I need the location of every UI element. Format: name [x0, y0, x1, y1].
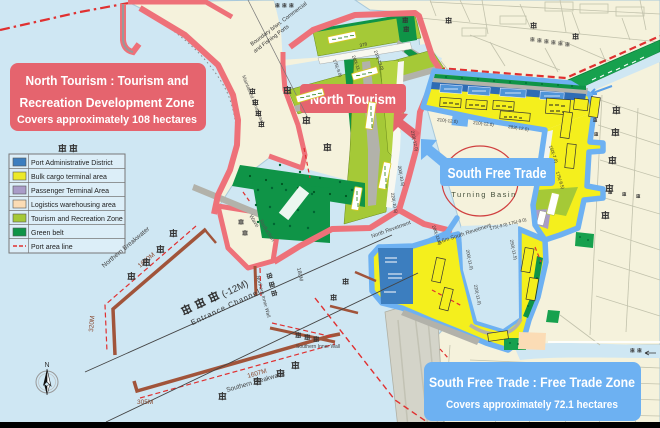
svg-text:Covers approximately 72.1 hect: Covers approximately 72.1 hectares — [446, 399, 618, 411]
svg-text:South Free Trade: South Free Trade — [448, 166, 547, 182]
svg-text:Bulk cargo terminal area: Bulk cargo terminal area — [31, 174, 107, 181]
svg-text:Passenger Terminal Area: Passenger Terminal Area — [31, 188, 109, 195]
svg-text:Tourism and Recreation Zone: Tourism and Recreation Zone — [31, 216, 123, 223]
svg-text:North Tourism : Tourism and: North Tourism : Tourism and — [26, 73, 189, 88]
svg-text:Covers approximately 108 hecta: Covers approximately 108 hectares — [17, 114, 197, 126]
svg-text:Turning Basin: Turning Basin — [451, 190, 517, 199]
svg-text:Green belt: Green belt — [31, 230, 64, 237]
svg-text:N: N — [44, 362, 49, 369]
svg-text:Southern Inner Wall: Southern Inner Wall — [296, 344, 340, 350]
svg-text:South Free Trade : Free Trade: South Free Trade : Free Trade Zone — [429, 375, 635, 390]
svg-text:Port area line: Port area line — [31, 244, 73, 251]
svg-text:305M: 305M — [137, 399, 153, 406]
svg-text:Recreation Development Zone: Recreation Development Zone — [20, 95, 195, 110]
svg-text:320M: 320M — [88, 315, 96, 332]
svg-text:Port Administrative District: Port Administrative District — [31, 160, 113, 167]
svg-text:Logistics warehousing area: Logistics warehousing area — [31, 202, 116, 209]
